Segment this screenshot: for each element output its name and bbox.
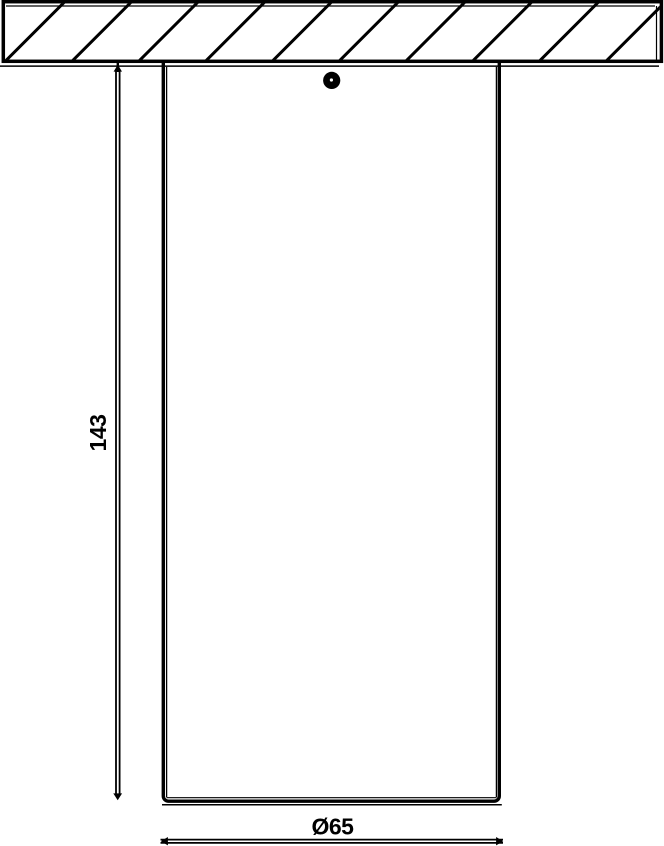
svg-text:143: 143	[85, 415, 111, 452]
svg-text:Ø65: Ø65	[312, 814, 355, 840]
